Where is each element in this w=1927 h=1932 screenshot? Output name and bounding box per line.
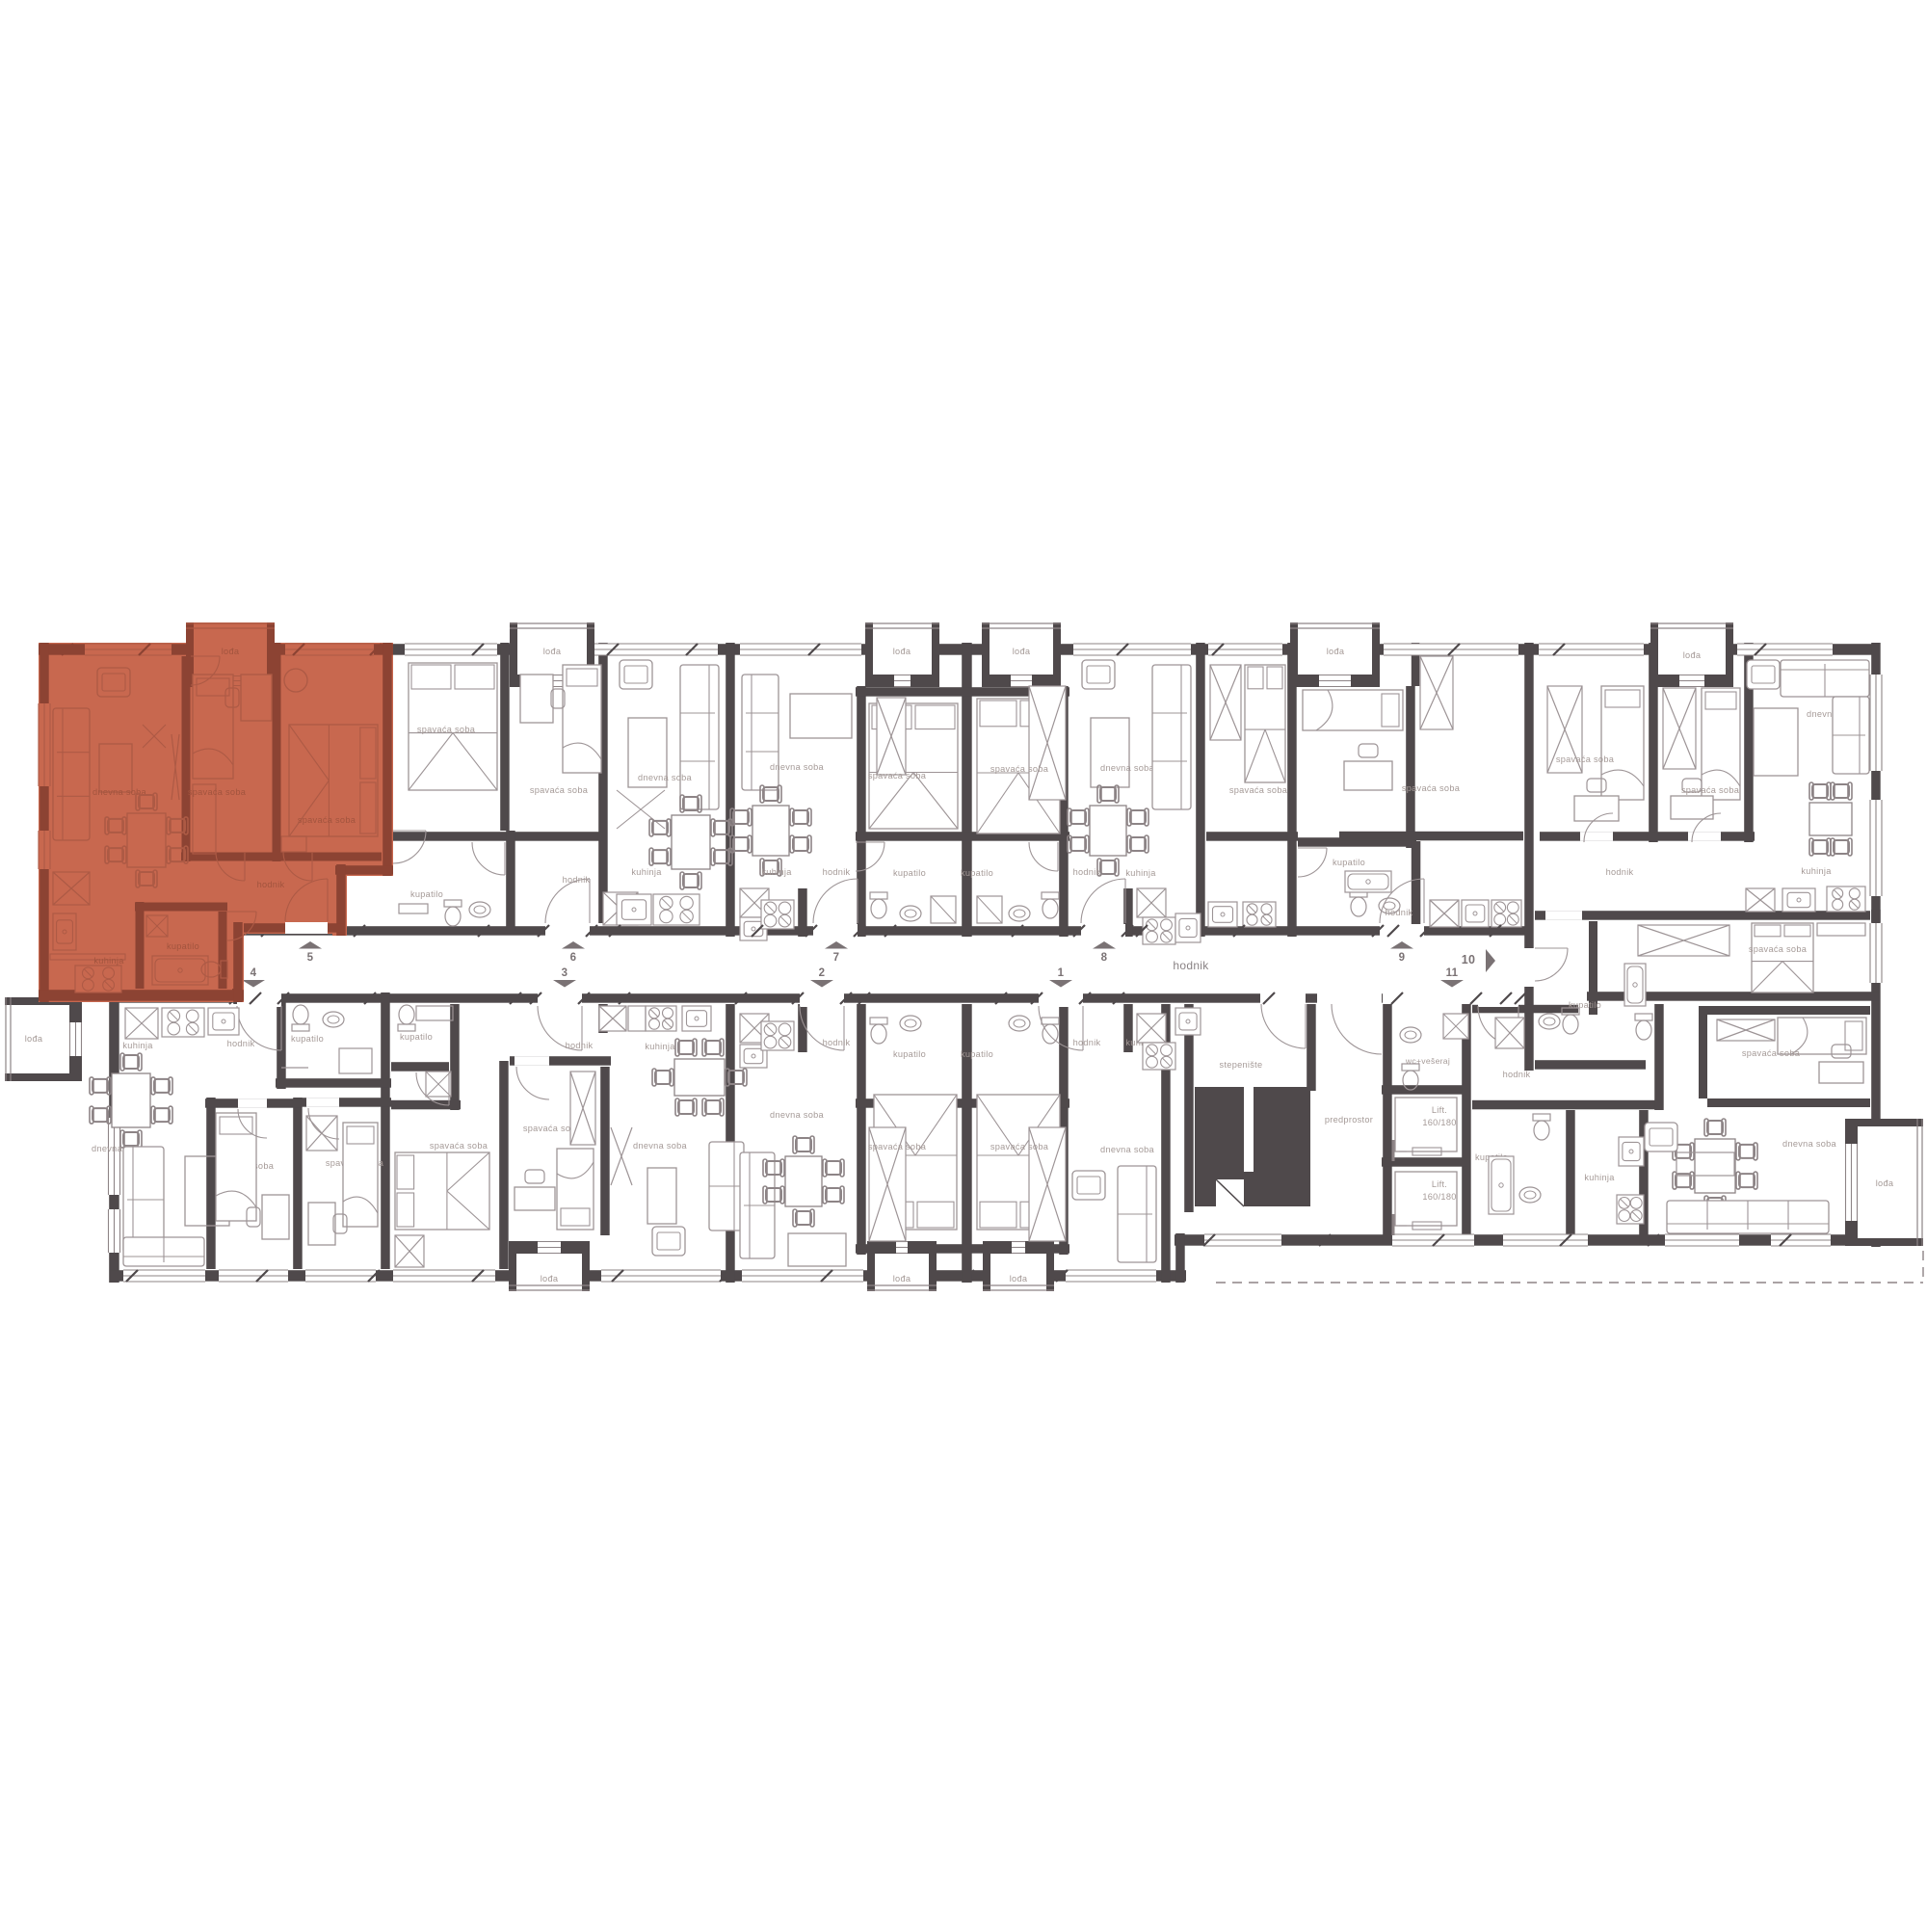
svg-text:Lift.: Lift. [1432, 1179, 1447, 1189]
svg-text:spavaća soba: spavaća soba [1402, 783, 1461, 793]
svg-text:hodnik: hodnik [823, 1038, 851, 1047]
svg-text:Lift.: Lift. [1432, 1105, 1447, 1115]
svg-text:kuhinja: kuhinja [1125, 868, 1156, 878]
svg-text:5: 5 [307, 952, 314, 964]
svg-text:dnevna soba: dnevna soba [1782, 1139, 1837, 1149]
svg-text:11: 11 [1446, 967, 1459, 979]
svg-text:4: 4 [251, 967, 257, 979]
svg-text:spavaća soba: spavaća soba [1556, 754, 1615, 764]
svg-text:160/180: 160/180 [1422, 1118, 1456, 1127]
svg-text:dnevna soba: dnevna soba [638, 773, 693, 782]
svg-text:kupatilo: kupatilo [167, 941, 199, 951]
svg-text:9: 9 [1399, 952, 1406, 964]
svg-text:7: 7 [833, 952, 840, 964]
svg-text:kupatilo: kupatilo [410, 889, 443, 899]
svg-text:3: 3 [562, 967, 568, 979]
svg-text:2: 2 [819, 967, 826, 979]
svg-text:10: 10 [1462, 953, 1476, 966]
svg-text:spavaća soba: spavaća soba [430, 1141, 488, 1151]
svg-text:kupatilo: kupatilo [893, 1049, 926, 1059]
svg-text:kuhinja: kuhinja [761, 867, 792, 877]
svg-text:8: 8 [1101, 952, 1108, 964]
svg-text:hodnik: hodnik [823, 867, 851, 877]
svg-text:dnevna soba: dnevna soba [1100, 763, 1155, 773]
svg-text:spavaća soba: spavaća soba [188, 787, 247, 797]
svg-text:dnevna soba: dnevna soba [770, 1110, 825, 1120]
svg-text:1: 1 [1058, 967, 1065, 979]
svg-text:lođa: lođa [222, 647, 240, 656]
svg-text:spavaća soba: spavaća soba [1749, 944, 1808, 954]
svg-text:6: 6 [570, 952, 577, 964]
svg-text:hodnik: hodnik [1503, 1070, 1531, 1079]
svg-text:lođa: lođa [1013, 647, 1031, 656]
svg-text:dnevna soba: dnevna soba [1100, 1145, 1155, 1154]
svg-text:lođa: lođa [893, 1274, 911, 1284]
svg-text:kuhinja: kuhinja [645, 1042, 675, 1051]
svg-text:hodnik: hodnik [1073, 1038, 1101, 1047]
svg-text:dnevna soba: dnevna soba [770, 762, 825, 772]
svg-text:lođa: lođa [1010, 1274, 1028, 1284]
svg-text:kuhinja: kuhinja [631, 867, 662, 877]
svg-text:hodnik: hodnik [1173, 959, 1209, 972]
svg-text:kupatilo: kupatilo [1333, 858, 1365, 867]
svg-text:lođa: lođa [893, 647, 911, 656]
svg-text:spavaća soba: spavaća soba [990, 1142, 1049, 1151]
svg-text:kupatilo: kupatilo [893, 868, 926, 878]
svg-text:kupatilo: kupatilo [400, 1032, 433, 1042]
svg-text:lođa: lođa [25, 1034, 43, 1044]
svg-text:spavaća soba: spavaća soba [530, 785, 589, 795]
svg-text:lođa: lođa [543, 647, 562, 656]
svg-text:spavaća soba: spavaća soba [990, 764, 1049, 774]
svg-text:spavaća soba: spavaća soba [1229, 785, 1288, 795]
svg-text:kupatilo: kupatilo [961, 1049, 993, 1059]
svg-text:predprostor: predprostor [1325, 1115, 1373, 1125]
svg-text:lođa: lođa [541, 1274, 559, 1284]
svg-text:spavaća soba: spavaća soba [868, 771, 927, 781]
svg-text:kuhinja: kuhinja [1801, 866, 1832, 876]
svg-text:kupatilo: kupatilo [291, 1034, 324, 1044]
svg-text:dnevna soba: dnevna soba [633, 1141, 688, 1151]
svg-text:spavaća soba: spavaća soba [298, 815, 356, 825]
svg-text:lođa: lođa [1683, 650, 1702, 660]
svg-text:spavaća soba: spavaća soba [868, 1142, 927, 1151]
svg-text:160/180: 160/180 [1422, 1192, 1456, 1202]
svg-text:hodnik: hodnik [1606, 867, 1634, 877]
svg-text:lođa: lođa [1876, 1178, 1894, 1188]
svg-text:hodnik: hodnik [257, 880, 285, 889]
svg-text:spavaća soba: spavaća soba [417, 725, 476, 734]
svg-text:hodnik: hodnik [227, 1039, 255, 1048]
svg-text:kuhinja: kuhinja [1584, 1173, 1615, 1182]
svg-text:hodnik: hodnik [1073, 867, 1101, 877]
svg-text:stepenište: stepenište [1220, 1060, 1263, 1070]
svg-text:hodnik: hodnik [566, 1041, 594, 1050]
svg-text:spavaća soba: spavaća soba [1742, 1048, 1801, 1058]
svg-text:kupatilo: kupatilo [961, 868, 993, 878]
svg-text:spavaća soba: spavaća soba [1681, 785, 1740, 795]
svg-text:hodnik: hodnik [563, 875, 591, 885]
svg-text:lođa: lođa [1327, 647, 1345, 656]
svg-text:kuhinja: kuhinja [122, 1041, 153, 1050]
svg-text:kuhinja: kuhinja [93, 956, 124, 966]
